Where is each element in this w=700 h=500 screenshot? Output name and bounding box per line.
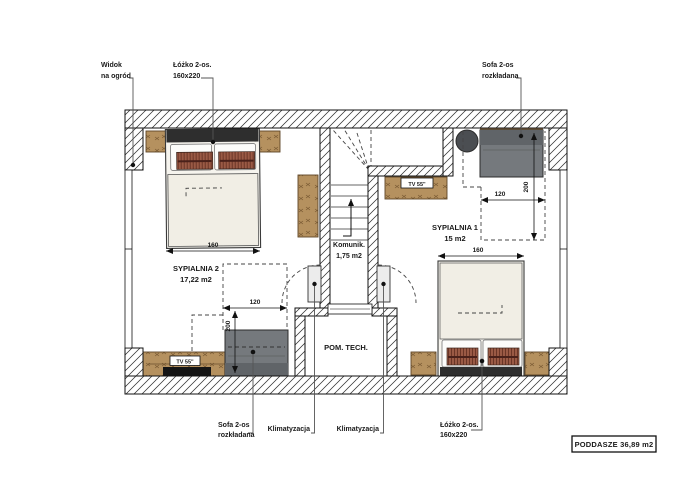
nightstand	[258, 131, 280, 152]
knee-wall-right	[560, 170, 567, 348]
bed-bottom-marker	[480, 359, 485, 364]
callout-view-line1: Widok	[101, 62, 122, 69]
callout-sofa-top-line1: Sofa 2-os	[482, 62, 514, 69]
sofa-back	[225, 363, 288, 377]
wall-stair-right	[368, 176, 378, 308]
nightstand	[525, 352, 549, 375]
window-marker	[131, 163, 135, 167]
sofa-bed-bedroom2	[225, 330, 288, 377]
wall-landing-horizontal	[368, 166, 453, 176]
tv-label-bedroom2: TV 55"	[176, 360, 194, 366]
tv-label-bedroom1: TV 55"	[408, 182, 426, 188]
callout-bed-top-line1: Łóżko 2-os.	[173, 62, 212, 69]
wall-landing-vertical	[443, 128, 453, 176]
duvet	[168, 174, 259, 247]
dim-bed1-width: 160	[473, 247, 484, 254]
sofa-top-marker	[519, 134, 523, 138]
sofa-bottom-marker	[251, 350, 256, 355]
floor-plan-page: TV 55" 120 200 160 120 200	[0, 0, 700, 500]
dim-sofa2-depth: 200	[225, 320, 232, 331]
nightstand	[146, 131, 168, 152]
wall-tech-left	[295, 308, 305, 376]
duvet	[440, 263, 522, 339]
floor-plan-drawing: TV 55" 120 200 160 120 200	[0, 0, 700, 500]
callout-view-line2: na ogród	[101, 73, 131, 80]
pouf	[456, 130, 478, 152]
title-box: PODDASZE 36,89 m2	[572, 436, 656, 452]
sofa-back	[480, 130, 543, 145]
wall-corner-bottom-right	[549, 348, 567, 376]
dim-sofa1-depth: 200	[523, 181, 530, 192]
label-bedroom2-name: SYPIALNIA 2	[173, 264, 219, 273]
tv-screen	[163, 367, 211, 376]
callout-sofa-bottom-line2: rozkładana	[218, 432, 255, 439]
knee-wall-left	[125, 170, 132, 348]
wall-tech-right	[387, 308, 397, 376]
wall-bottom	[125, 376, 567, 394]
callout-sofa-bottom-line1: Sofa 2-os	[218, 422, 250, 429]
ac-right-marker	[381, 282, 385, 286]
callout-ac-right: Klimatyzacja	[337, 426, 380, 433]
nightstand	[411, 352, 436, 375]
callout-bed-bottom-line2: 160x220	[440, 432, 467, 439]
dim-bed2-width: 160	[208, 242, 219, 249]
callout-bed-bottom-line1: Łóżko 2-os.	[440, 422, 479, 429]
label-corridor-area: 1,75 m2	[336, 253, 362, 260]
sofa-bed-bedroom1	[480, 130, 543, 177]
wardrobe	[298, 175, 318, 237]
double-bed-bedroom2	[165, 129, 260, 249]
wall-corner-top-right	[549, 128, 567, 170]
bed-top-marker	[211, 140, 215, 144]
label-bedroom2-area: 17,22 m2	[180, 275, 212, 284]
wall-tech-top-right	[372, 308, 397, 316]
wall-corner-bottom-left	[125, 348, 143, 376]
wall-top	[125, 110, 567, 128]
callout-bed-top-line2: 160x220	[173, 73, 200, 80]
callout-ac-left: Klimatyzacja	[268, 426, 311, 433]
label-corridor-name: Komunik.	[333, 242, 365, 249]
ac-left-marker	[312, 282, 316, 286]
callout-sofa-top-line2: rozkładana	[482, 73, 519, 80]
plan-title: PODDASZE 36,89 m2	[575, 440, 654, 449]
label-bedroom1-area: 15 m2	[444, 234, 465, 243]
dim-sofa2-width: 120	[250, 299, 261, 306]
wall-tech-top-left	[295, 308, 328, 316]
label-technical-room: POM. TECH.	[324, 343, 368, 352]
label-bedroom1-name: SYPIALNIA 1	[432, 223, 478, 232]
wall-stair-left	[320, 128, 330, 308]
dim-sofa1-width: 120	[495, 191, 506, 198]
